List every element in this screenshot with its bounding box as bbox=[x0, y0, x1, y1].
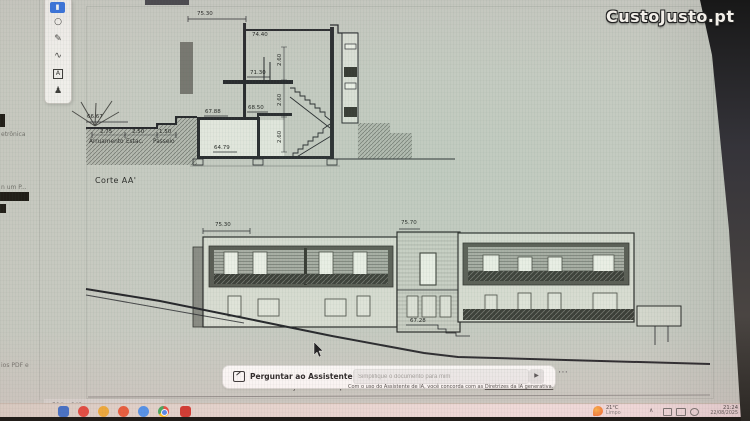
window-bottom-line bbox=[88, 395, 710, 397]
section-title: Corte AA' bbox=[95, 176, 136, 185]
ai-disclaimer: Com o uso do Assistente de IA, você conc… bbox=[348, 384, 553, 390]
tray-icon-2[interactable] bbox=[676, 408, 686, 416]
dim-label: 67.28 bbox=[410, 318, 426, 324]
ai-guidelines-link[interactable]: Diretrizes da IA generativa. bbox=[485, 384, 553, 390]
street-label: Passeio bbox=[153, 139, 175, 145]
chat-icon bbox=[233, 371, 245, 382]
comment-tool-icon[interactable]: ○ bbox=[45, 15, 71, 29]
acrobat-icon[interactable] bbox=[180, 406, 191, 417]
weather-icon[interactable] bbox=[593, 406, 603, 416]
custojusto-watermark: CustoJusto.pt bbox=[606, 7, 734, 26]
monitor-screen: etrônica n um P... ios PDF e bbox=[0, 0, 750, 421]
scribble-tool-icon[interactable]: ∿ bbox=[45, 49, 71, 63]
tray-expand-icon[interactable]: ∧ bbox=[649, 407, 653, 414]
more-options-icon[interactable]: ⋯ bbox=[558, 367, 568, 378]
dim-label: 68.50 bbox=[248, 105, 264, 111]
textbox-tool-icon[interactable]: A bbox=[45, 66, 71, 80]
neighbor-wall bbox=[180, 42, 193, 94]
windows-taskbar: 21°C Limpo ∧ 21:24 22/08/2025 bbox=[0, 403, 750, 418]
dim-label: 66.67 bbox=[87, 114, 103, 120]
pen-tool-icon[interactable]: ✎ bbox=[45, 32, 71, 46]
taskbar-app-icon-2[interactable] bbox=[78, 406, 89, 417]
chrome-icon[interactable] bbox=[158, 406, 169, 417]
dim-label: 64.79 bbox=[214, 145, 230, 151]
tray-icon-1[interactable] bbox=[663, 408, 672, 416]
weather-widget[interactable]: 21°C Limpo bbox=[606, 405, 621, 417]
textbox-glyph: A bbox=[53, 69, 63, 79]
taskbar-app-icon-5[interactable] bbox=[138, 406, 149, 417]
dim-label: 1.50 bbox=[159, 129, 171, 135]
monitor-bottom-bezel bbox=[0, 417, 750, 421]
annotation-toolbar: ▮ ○ ✎ ∿ A ♟ bbox=[44, 0, 72, 104]
stamp-tool-icon[interactable]: ♟ bbox=[45, 84, 71, 98]
dim-label: 67.88 bbox=[205, 109, 221, 115]
dim-label: 2.60 bbox=[277, 94, 283, 106]
dim-label: 74.40 bbox=[252, 32, 268, 38]
taskbar-app-icon-3[interactable] bbox=[98, 406, 109, 417]
elevation-drawing bbox=[86, 228, 710, 364]
ai-prompt-input[interactable] bbox=[353, 369, 529, 384]
dim-label: 75.30 bbox=[215, 222, 231, 228]
ai-send-button[interactable]: ▶ bbox=[529, 369, 544, 384]
dim-label: 2.50 bbox=[132, 129, 144, 135]
architectural-drawing bbox=[0, 0, 750, 421]
taskbar-clock[interactable]: 21:24 22/08/2025 bbox=[696, 405, 738, 417]
dim-label: 2.60 bbox=[277, 131, 283, 143]
mouse-cursor bbox=[314, 342, 323, 357]
active-annotation-tool[interactable]: ▮ bbox=[50, 2, 65, 13]
taskbar-app-icon-1[interactable] bbox=[58, 406, 69, 417]
street-label: Estac. bbox=[126, 139, 144, 145]
dim-label: 2.60 bbox=[277, 54, 283, 66]
ai-disclaimer-text: Com o uso do Assistente de IA, você conc… bbox=[348, 384, 485, 390]
taskbar-app-icon-4[interactable] bbox=[118, 406, 129, 417]
street-label: Arruamento bbox=[89, 139, 124, 145]
dim-label: 71.30 bbox=[250, 70, 266, 76]
dim-label: 75.70 bbox=[401, 220, 417, 226]
dim-label: 2.75 bbox=[100, 129, 112, 135]
dim-label: 75.30 bbox=[197, 11, 213, 17]
